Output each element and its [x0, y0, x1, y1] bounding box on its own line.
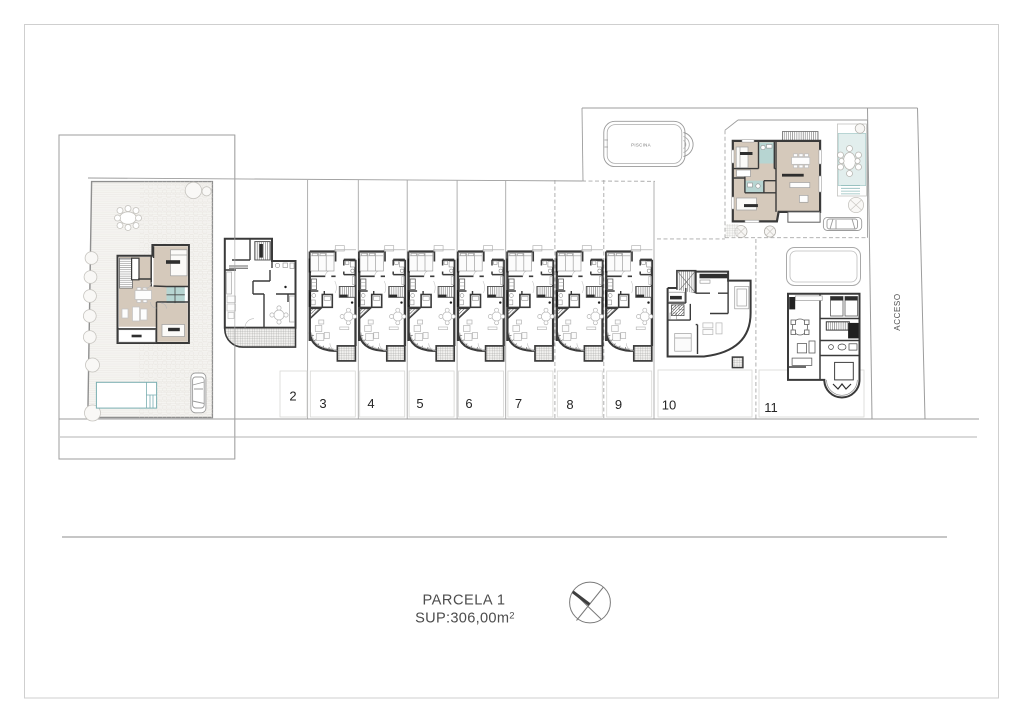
svg-text:11: 11: [764, 400, 778, 415]
svg-text:10: 10: [662, 398, 676, 413]
svg-text:4: 4: [367, 396, 374, 411]
svg-text:SUP:306,00m2: SUP:306,00m2: [415, 611, 515, 627]
svg-text:2: 2: [289, 389, 296, 404]
svg-text:9: 9: [615, 397, 622, 412]
svg-text:8: 8: [566, 397, 573, 412]
svg-text:PISCINA: PISCINA: [631, 143, 651, 148]
svg-text:3: 3: [319, 396, 326, 411]
svg-text:6: 6: [465, 396, 472, 411]
svg-text:7: 7: [515, 396, 522, 411]
svg-text:5: 5: [416, 396, 423, 411]
svg-text:ACCESO: ACCESO: [893, 293, 902, 330]
svg-text:PARCELA 1: PARCELA 1: [423, 593, 506, 609]
